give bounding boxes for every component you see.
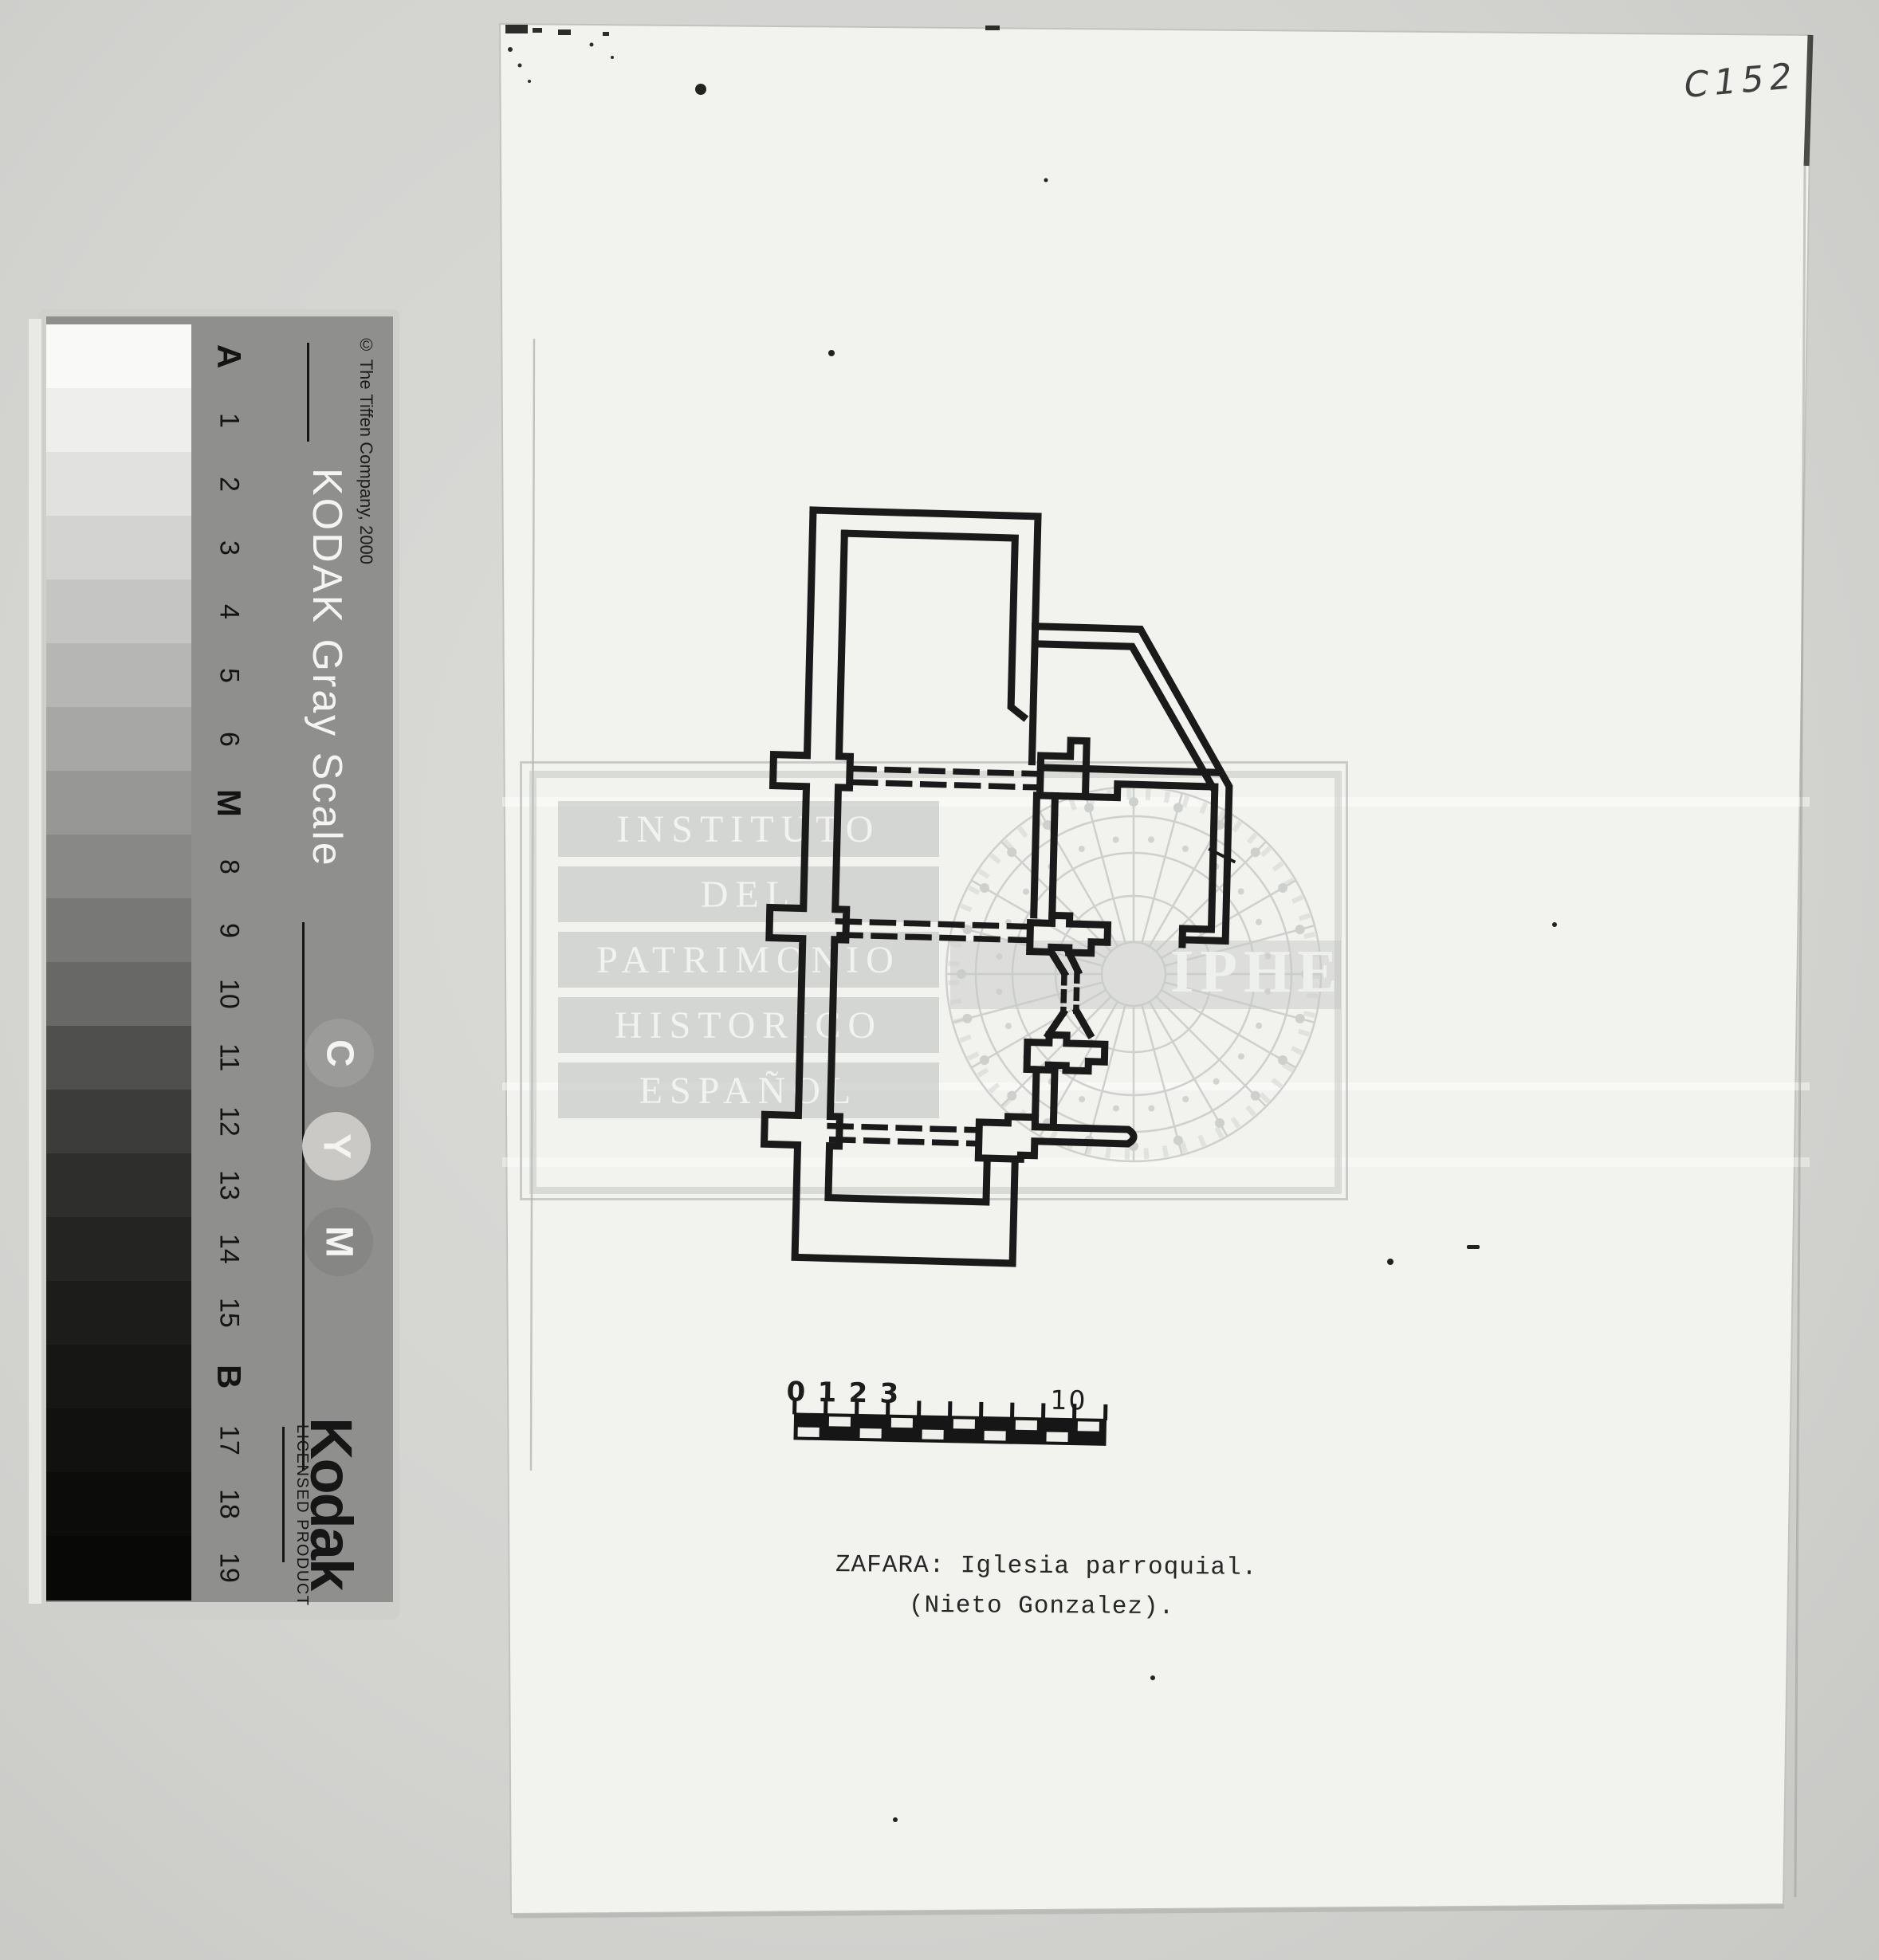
scale-tick (1103, 1404, 1107, 1420)
gray-patch-6 (46, 707, 191, 772)
gray-patch-label: B (210, 1345, 247, 1408)
scale-tick-label: 2 (848, 1377, 867, 1409)
plan-pier (1027, 1035, 1105, 1072)
scale-bar-segment (1078, 1421, 1099, 1432)
gray-patch-3 (46, 516, 191, 580)
plan-arch-dashes (830, 768, 1039, 1145)
cmy-letter: M (317, 1226, 361, 1258)
gray-patch-label: 14 (210, 1217, 247, 1281)
plan-chancel-north-wall (1043, 768, 1220, 772)
scale-tick (948, 1401, 952, 1417)
gray-patch-label: 12 (210, 1090, 247, 1153)
kodak-logo: Kodak (314, 1417, 365, 1577)
caption-author: (Nieto Gonzalez). (909, 1592, 1175, 1621)
plan-east-wall (1034, 795, 1055, 916)
scanned-archive-photo: { "gray_scale_strip": { "copyright": "© … (0, 0, 1879, 1960)
plan-inner-west-wall (828, 533, 1002, 1202)
gray-patch-1 (46, 388, 191, 453)
gray-patch-label: 11 (210, 1026, 247, 1090)
scale-bar-segment (1016, 1420, 1037, 1431)
gray-patch-label: 6 (210, 707, 247, 771)
scale-tick-label: 1 (817, 1377, 836, 1408)
scale-bar-segment (953, 1419, 975, 1429)
gray-patch-label: 15 (210, 1281, 247, 1345)
caption-title: ZAFARA: Iglesia parroquial. (835, 1551, 1258, 1582)
plan-top-room-inner (840, 533, 1028, 717)
gray-patch-label: M (210, 771, 247, 835)
gray-patch-15 (46, 1281, 191, 1345)
scale-bar-segment (829, 1416, 851, 1427)
gray-patch-8 (46, 835, 191, 899)
scale-tick (1041, 1403, 1045, 1419)
scale-bar-segment (1046, 1432, 1067, 1442)
gray-patch-label: 2 (210, 452, 247, 516)
plan-chancel-north-inner (1087, 784, 1214, 800)
scale-tick (979, 1402, 983, 1418)
gray-patch-9 (46, 898, 191, 963)
scale-tick (1072, 1404, 1076, 1420)
gray-patch-B (46, 1345, 191, 1409)
gray-patch-label: 19 (210, 1536, 247, 1600)
gray-patch-A (46, 324, 191, 389)
scale-bar: 10 ms. 0123 (776, 1376, 1144, 1471)
scale-tick (917, 1400, 921, 1416)
gray-patch-label: 3 (210, 516, 247, 579)
strip-copyright: © The Tiffen Company, 2000 (351, 335, 376, 845)
gray-scale-strip: © The Tiffen Company, 2000 KODAK Gray Sc… (46, 316, 393, 1602)
scale-bar-segment (860, 1428, 882, 1439)
gray-patch-label: 10 (210, 962, 247, 1026)
gray-patch-label: 5 (210, 643, 247, 707)
gray-patch-label: 1 (210, 388, 247, 452)
gray-patch-label: 9 (210, 898, 247, 962)
gray-patch-label: 13 (210, 1153, 247, 1217)
strip-edge-glint (29, 319, 41, 1604)
gray-patch-label: 8 (210, 835, 247, 898)
kodak-licensed-product: LICENSED PRODUCT (290, 1424, 311, 1584)
gray-patch-label: 18 (210, 1472, 247, 1536)
gray-patch-17 (46, 1408, 191, 1473)
gray-patch-19 (46, 1536, 191, 1601)
gray-patch-4 (46, 579, 191, 644)
cmy-circle-Y: Y (302, 1112, 371, 1180)
cmy-circle-C: C (305, 1019, 374, 1087)
gray-patch-18 (46, 1472, 191, 1537)
gray-patch-13 (46, 1153, 191, 1218)
cmy-circle-M: M (305, 1208, 373, 1276)
strip-logo-rule (282, 1427, 285, 1562)
gray-patch-2 (46, 452, 191, 517)
gray-patch-M (46, 771, 191, 835)
gray-patch-11 (46, 1026, 191, 1090)
cmy-letter: C (318, 1039, 362, 1067)
strip-rule-bottom (302, 922, 305, 1471)
scale-bar-segment (798, 1428, 820, 1438)
gray-patch-label: 17 (210, 1408, 247, 1472)
scale-bar-segment (891, 1418, 913, 1428)
plan-pier (1030, 915, 1108, 954)
cmy-letter: Y (315, 1133, 359, 1159)
gray-patch-12 (46, 1090, 191, 1154)
scale-bar-rule (793, 1412, 1107, 1446)
gray-patch-10 (46, 962, 191, 1027)
scale-tick (1010, 1403, 1014, 1419)
gray-patch-5 (46, 643, 191, 708)
scale-tick-label: 3 (879, 1377, 898, 1409)
gray-patch-14 (46, 1217, 191, 1282)
plan-passage-dashes (1063, 972, 1077, 1013)
plan-passage-jambs (1048, 952, 1092, 1035)
strip-rule-top (307, 343, 309, 442)
scale-bar-segment (922, 1430, 944, 1440)
scale-bar-segment (984, 1431, 1005, 1441)
plan-west-wall (761, 509, 1031, 1263)
gray-patch-label: A (210, 324, 247, 388)
gray-patch-label: 4 (210, 579, 247, 643)
scale-tick-label: 0 (786, 1376, 805, 1408)
